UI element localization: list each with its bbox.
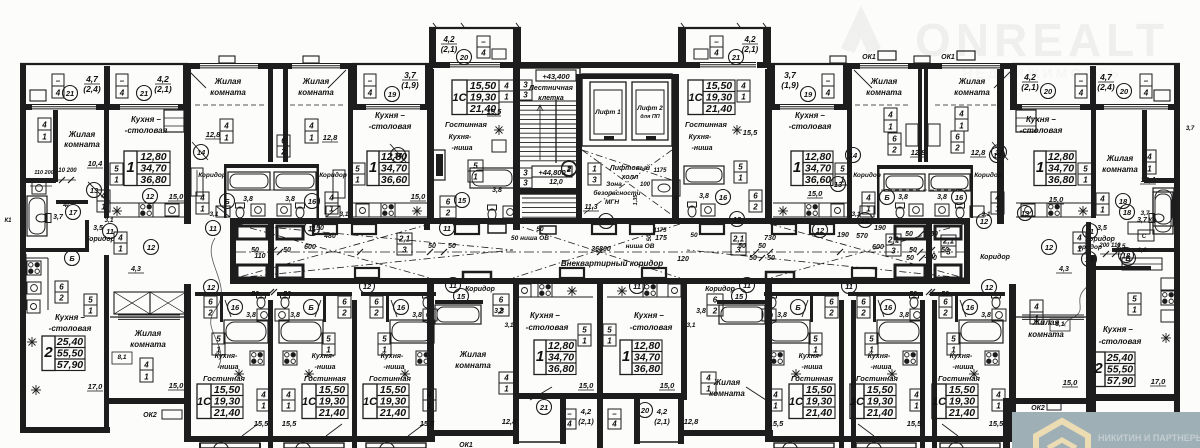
svg-text:3: 3 [736, 246, 741, 255]
svg-text:комната: комната [210, 88, 246, 97]
svg-text:1: 1 [101, 203, 106, 212]
svg-text:1: 1 [741, 93, 746, 102]
svg-text:Кухня-: Кухня- [950, 353, 973, 360]
svg-text:3,8: 3,8 [777, 312, 787, 319]
svg-text:3,7: 3,7 [404, 70, 417, 80]
svg-text:комната: комната [954, 88, 990, 97]
svg-text:Гостинная: Гостинная [304, 374, 346, 383]
svg-text:1: 1 [536, 348, 544, 365]
svg-text:50: 50 [767, 255, 775, 262]
svg-text:4,2: 4,2 [442, 35, 455, 44]
svg-text:16: 16 [719, 193, 728, 202]
svg-text:(2,1): (2,1) [742, 45, 759, 54]
svg-text:4: 4 [41, 121, 47, 130]
svg-text:570: 570 [856, 233, 868, 240]
svg-text:14: 14 [849, 151, 858, 160]
svg-text:3,7: 3,7 [784, 70, 797, 80]
svg-text:комната: комната [130, 340, 166, 349]
svg-text:1: 1 [706, 385, 711, 394]
svg-text:3,7: 3,7 [1186, 126, 1195, 132]
svg-text:-столовая: -столовая [1020, 126, 1063, 135]
svg-text:1: 1 [369, 159, 377, 176]
svg-text:15,5: 15,5 [907, 419, 922, 428]
svg-text:Кухня-: Кухня- [868, 353, 891, 360]
svg-text:Кухня –: Кухня – [1026, 115, 1057, 124]
svg-text:ОК1: ОК1 [459, 442, 473, 448]
svg-text:–: – [1144, 77, 1149, 86]
svg-text:1: 1 [473, 173, 478, 182]
svg-text:2: 2 [58, 294, 64, 303]
svg-text:55,50: 55,50 [1107, 364, 1133, 376]
svg-text:1: 1 [793, 159, 801, 176]
svg-text:4,7: 4,7 [1099, 72, 1113, 82]
svg-text:16: 16 [397, 303, 406, 312]
svg-text:50: 50 [690, 232, 698, 239]
svg-text:50: 50 [251, 291, 259, 298]
svg-text:2: 2 [828, 309, 834, 318]
svg-text:Б: Б [224, 197, 230, 206]
svg-text:Гостинная: Гостинная [445, 120, 487, 129]
svg-text:3,8: 3,8 [290, 312, 300, 319]
svg-text:4: 4 [143, 361, 149, 370]
svg-text:-ниша: -ниша [315, 364, 336, 371]
svg-text:4: 4 [887, 111, 893, 120]
svg-text:Кухня-: Кухня- [312, 353, 335, 360]
svg-text:15,50: 15,50 [214, 384, 240, 396]
svg-text:5: 5 [88, 296, 93, 305]
svg-text:4: 4 [1078, 89, 1084, 98]
svg-text:50: 50 [909, 247, 917, 254]
svg-text:1: 1 [582, 337, 587, 346]
svg-text:1: 1 [114, 176, 119, 185]
svg-text:4: 4 [1143, 89, 1149, 98]
svg-text:1: 1 [144, 373, 149, 382]
svg-text:Жилая: Жилая [1106, 154, 1134, 163]
svg-text:14: 14 [995, 148, 1004, 157]
svg-text:110 200: 110 200 [55, 168, 77, 174]
svg-text:1: 1 [88, 307, 93, 316]
svg-text:2: 2 [445, 209, 451, 218]
svg-text:4: 4 [673, 196, 678, 202]
svg-text:4: 4 [611, 420, 617, 429]
svg-text:1С: 1С [197, 396, 212, 408]
svg-text:15: 15 [458, 196, 467, 205]
svg-text:-ниша: -ниша [802, 364, 823, 371]
svg-text:15,5: 15,5 [254, 419, 269, 428]
svg-text:(2,4): (2,4) [1097, 82, 1115, 92]
svg-text:4: 4 [1099, 195, 1105, 204]
svg-text:36,80: 36,80 [1048, 174, 1074, 186]
svg-text:1: 1 [773, 402, 778, 411]
svg-text:21: 21 [65, 89, 74, 98]
svg-text:4: 4 [913, 391, 919, 400]
svg-text:19: 19 [388, 90, 397, 99]
svg-text:21,40: 21,40 [866, 407, 893, 419]
svg-text:15,0: 15,0 [660, 381, 675, 390]
svg-text:50: 50 [749, 255, 757, 262]
svg-text:-столовая: -столовая [369, 122, 412, 131]
svg-text:Жилая: Жилая [214, 77, 242, 86]
svg-text:5: 5 [114, 165, 119, 174]
svg-text:2: 2 [942, 309, 948, 318]
svg-text:4,2: 4,2 [743, 35, 756, 44]
svg-text:ОК2: ОК2 [143, 412, 157, 419]
svg-text:6: 6 [342, 298, 347, 307]
svg-text:Коридор: Коридор [85, 235, 115, 243]
svg-text:5: 5 [473, 162, 478, 171]
svg-text:4: 4 [995, 391, 1001, 400]
svg-text:6: 6 [281, 137, 286, 146]
svg-text:36,60: 36,60 [381, 174, 407, 186]
svg-text:1: 1 [607, 337, 612, 346]
svg-text:для ПП: для ПП [640, 114, 661, 120]
svg-text:3,7: 3,7 [1137, 217, 1148, 224]
svg-text:4,2: 4,2 [156, 74, 169, 84]
svg-text:Кухня-: Кухня- [689, 134, 712, 141]
svg-text:5: 5 [1132, 295, 1137, 304]
svg-text:16: 16 [308, 197, 317, 206]
svg-text:(2,4): (2,4) [83, 84, 101, 94]
svg-text:Кухня-: Кухня- [449, 134, 472, 141]
svg-text:4: 4 [713, 49, 719, 58]
svg-text:ОК1: ОК1 [941, 54, 955, 61]
svg-text:–: – [368, 77, 373, 86]
svg-text:50: 50 [428, 243, 436, 250]
svg-text:Жилая: Жилая [870, 77, 898, 86]
svg-text:-ниша: -ниша [452, 145, 473, 152]
svg-text:5: 5 [326, 335, 331, 344]
svg-text:19,30: 19,30 [319, 396, 345, 408]
svg-text:12,80: 12,80 [140, 151, 166, 163]
svg-text:Гостинная: Гостинная [203, 374, 245, 383]
svg-text:(2,1): (2,1) [441, 45, 458, 54]
svg-text:6: 6 [59, 283, 64, 292]
svg-text:1175: 1175 [654, 168, 668, 174]
svg-text:120: 120 [677, 256, 689, 263]
svg-text:комната: комната [298, 88, 334, 97]
svg-text:36,80: 36,80 [634, 363, 660, 375]
svg-text:1: 1 [200, 205, 205, 214]
svg-text:(2,1): (2,1) [1021, 82, 1039, 92]
svg-text:21,40: 21,40 [805, 407, 832, 419]
svg-text:4: 4 [825, 89, 831, 98]
svg-text:Жилая: Жилая [68, 130, 96, 139]
svg-text:15,0: 15,0 [808, 189, 823, 198]
svg-text:1С: 1С [850, 396, 865, 408]
svg-text:1С: 1С [688, 92, 703, 104]
svg-text:12,8: 12,8 [206, 130, 221, 139]
svg-text:комната: комната [1102, 165, 1138, 174]
svg-text:4,2: 4,2 [1023, 72, 1036, 82]
svg-text:–: – [612, 410, 617, 419]
svg-text:1: 1 [504, 385, 509, 394]
svg-text:600: 600 [304, 244, 316, 251]
svg-text:15,50: 15,50 [949, 384, 975, 396]
svg-text:НИКИТИН И ПАРТНЕРЫ: НИКИТИН И ПАРТНЕРЫ [1098, 433, 1200, 443]
svg-text:1,6: 1,6 [1137, 247, 1146, 254]
svg-text:50: 50 [906, 255, 914, 262]
svg-text:21,40: 21,40 [948, 407, 975, 419]
svg-text:+43,400: +43,400 [542, 72, 570, 81]
svg-text:20: 20 [459, 53, 469, 62]
svg-text:5: 5 [1083, 165, 1088, 174]
svg-text:6: 6 [753, 192, 758, 201]
svg-text:5: 5 [813, 335, 818, 344]
svg-text:-столовая: -столовая [526, 323, 569, 332]
svg-text:1: 1 [1083, 176, 1088, 185]
svg-text:190: 190 [837, 232, 849, 239]
svg-text:110: 110 [254, 253, 265, 260]
svg-text:4: 4 [740, 82, 746, 91]
svg-text:4,3: 4,3 [130, 266, 141, 273]
svg-text:50: 50 [758, 243, 766, 250]
svg-text:1: 1 [126, 159, 134, 176]
svg-text:-столовая: -столовая [1099, 337, 1142, 346]
svg-text:190: 190 [874, 225, 886, 232]
svg-text:4: 4 [503, 82, 509, 91]
svg-text:50: 50 [448, 243, 456, 250]
svg-text:3,7: 3,7 [53, 214, 64, 221]
svg-text:50: 50 [251, 247, 259, 254]
svg-text:11: 11 [845, 282, 853, 291]
svg-text:3,8: 3,8 [981, 312, 991, 319]
svg-text:3,8: 3,8 [699, 193, 709, 200]
svg-text:12: 12 [980, 217, 989, 226]
svg-text:57,90: 57,90 [57, 359, 83, 371]
svg-text:6: 6 [892, 135, 897, 144]
svg-text:4,7: 4,7 [85, 74, 99, 84]
svg-text:2: 2 [891, 146, 897, 155]
svg-text:4: 4 [994, 194, 1000, 203]
svg-text:5: 5 [951, 335, 956, 344]
svg-text:4: 4 [566, 420, 572, 429]
svg-text:2: 2 [752, 203, 758, 212]
svg-text:Гостинная: Гостинная [938, 374, 980, 383]
svg-text:3,7: 3,7 [1140, 210, 1149, 217]
svg-text:4: 4 [1076, 234, 1082, 243]
svg-text:15,0: 15,0 [169, 381, 184, 390]
svg-text:Б: Б [795, 303, 801, 312]
svg-text:6: 6 [499, 296, 504, 305]
svg-text:12: 12 [985, 283, 994, 292]
svg-text:Кухня-: Кухня- [799, 353, 822, 360]
svg-text:11: 11 [633, 282, 641, 291]
svg-text:6: 6 [208, 298, 213, 307]
svg-text:17,0: 17,0 [1151, 377, 1166, 386]
svg-text:13: 13 [834, 180, 843, 189]
svg-text:175: 175 [655, 235, 667, 242]
svg-text:17: 17 [69, 208, 78, 217]
svg-text:Коридор: Коридор [980, 253, 1010, 261]
svg-text:15,5: 15,5 [769, 419, 784, 428]
svg-text:Коридор: Коридор [853, 171, 881, 179]
svg-text:8,1: 8,1 [1055, 321, 1064, 328]
svg-text:Жилая: Жилая [459, 350, 487, 359]
svg-text:34,70: 34,70 [805, 163, 831, 175]
svg-text:13: 13 [1021, 209, 1030, 218]
svg-text:12,80: 12,80 [805, 151, 831, 163]
svg-text:комната: комната [866, 88, 902, 97]
svg-text:4: 4 [1146, 153, 1152, 162]
svg-text:6: 6 [955, 133, 960, 142]
svg-text:34,70: 34,70 [634, 352, 660, 364]
svg-text:–: – [826, 77, 831, 86]
svg-text:15,50: 15,50 [706, 80, 732, 92]
svg-text:Гостинная: Гостинная [685, 120, 727, 129]
svg-text:15,50: 15,50 [806, 384, 832, 396]
svg-text:Лестничная: Лестничная [528, 85, 573, 92]
svg-text:25,40: 25,40 [56, 336, 83, 348]
svg-text:50: 50 [647, 234, 653, 241]
svg-text:3,1: 3,1 [686, 322, 695, 329]
svg-text:2: 2 [373, 309, 379, 318]
svg-text:1С: 1С [789, 396, 804, 408]
svg-text:3,1: 3,1 [339, 211, 348, 218]
svg-text:15,0: 15,0 [411, 192, 426, 201]
svg-text:(2,1): (2,1) [578, 417, 594, 426]
svg-text:18: 18 [1119, 197, 1128, 206]
svg-text:21,40: 21,40 [705, 103, 732, 115]
svg-text:4,3: 4,3 [1058, 266, 1069, 273]
svg-text:50: 50 [909, 291, 917, 298]
svg-text:3: 3 [523, 81, 528, 90]
svg-text:50: 50 [905, 231, 913, 238]
svg-text:3,8: 3,8 [899, 312, 909, 319]
svg-text:15,50: 15,50 [380, 384, 406, 396]
svg-text:3,8: 3,8 [246, 312, 256, 319]
svg-text:1: 1 [738, 174, 743, 183]
svg-text:4: 4 [308, 122, 314, 131]
svg-text:–: – [567, 410, 572, 419]
svg-text:Кухня-: Кухня- [381, 353, 404, 360]
svg-text:2: 2 [280, 148, 286, 157]
svg-text:19,30: 19,30 [706, 92, 732, 104]
svg-text:12: 12 [733, 215, 742, 224]
svg-text:4: 4 [958, 110, 964, 119]
svg-text:6: 6 [374, 298, 379, 307]
svg-text:15,0: 15,0 [1063, 378, 1078, 387]
svg-text:18: 18 [1122, 251, 1131, 260]
svg-text:3,8: 3,8 [243, 196, 253, 203]
svg-text:1С: 1С [302, 396, 317, 408]
svg-text:12,8: 12,8 [502, 417, 517, 426]
svg-text:-ниша: -ниша [871, 364, 892, 371]
svg-text:4: 4 [328, 194, 334, 203]
svg-text:4: 4 [865, 194, 871, 203]
svg-text:11: 11 [308, 224, 316, 233]
svg-text:Коридор: Коридор [705, 285, 735, 293]
svg-text:-столовая: -столовая [49, 324, 92, 333]
svg-text:(2,1): (2,1) [654, 417, 670, 426]
svg-text:Б: Б [884, 193, 890, 202]
svg-text:12: 12 [147, 243, 156, 252]
svg-text:11: 11 [743, 281, 751, 290]
svg-text:12: 12 [207, 283, 216, 292]
svg-text:(1,9): (1,9) [401, 80, 419, 90]
svg-text:4,2: 4,2 [580, 407, 592, 416]
svg-text:-ниша: -ниша [953, 364, 974, 371]
svg-text:Гостинная: Гостинная [791, 374, 833, 383]
svg-text:4: 4 [503, 374, 509, 383]
svg-text:Кухня –: Кухня – [131, 115, 162, 124]
svg-text:19,30: 19,30 [806, 396, 832, 408]
svg-text:3,8: 3,8 [898, 194, 908, 201]
svg-text:15,5: 15,5 [487, 107, 502, 116]
svg-text:12,80: 12,80 [548, 340, 574, 352]
svg-text:Коридор: Коридор [465, 285, 495, 293]
svg-text:11: 11 [209, 224, 217, 233]
svg-text:1С: 1С [452, 92, 467, 104]
svg-text:600: 600 [872, 244, 884, 251]
svg-text:5: 5 [738, 163, 743, 172]
svg-text:17,0: 17,0 [88, 382, 103, 391]
svg-text:ОК1: ОК1 [862, 54, 876, 61]
svg-text:1,35: 1,35 [633, 194, 639, 206]
svg-text:1: 1 [118, 245, 123, 254]
svg-text:16: 16 [966, 303, 975, 312]
svg-text:Кухня –: Кухня – [530, 311, 561, 320]
svg-text:1С: 1С [363, 396, 378, 408]
svg-text:12: 12 [146, 192, 155, 201]
svg-text:Зона: Зона [606, 181, 622, 188]
svg-text:(1,9): (1,9) [781, 80, 799, 90]
svg-text:4: 4 [223, 122, 229, 131]
svg-text:Кухня –: Кухня – [795, 111, 826, 120]
svg-text:1: 1 [622, 348, 630, 365]
svg-text:4: 4 [100, 192, 106, 201]
svg-text:Кухня –: Кухня – [375, 111, 406, 120]
svg-text:8,1: 8,1 [117, 354, 126, 361]
svg-text:3: 3 [402, 246, 407, 255]
svg-text:4,2: 4,2 [656, 407, 668, 416]
svg-text:3: 3 [592, 176, 597, 185]
svg-text:1: 1 [1132, 306, 1137, 315]
svg-text:4: 4 [480, 49, 486, 58]
svg-text:15,5: 15,5 [282, 419, 297, 428]
svg-text:11: 11 [106, 227, 114, 236]
svg-text:34,70: 34,70 [548, 352, 574, 364]
svg-text:34,70: 34,70 [381, 163, 407, 175]
svg-text:3: 3 [523, 169, 528, 178]
svg-text:Лифт 1: Лифт 1 [594, 109, 621, 116]
svg-text:10,4: 10,4 [88, 159, 103, 168]
svg-text:2,1: 2,1 [398, 235, 411, 244]
svg-text:5: 5 [607, 326, 612, 335]
svg-text:(2,1): (2,1) [154, 84, 172, 94]
svg-text:15,50: 15,50 [319, 384, 345, 396]
svg-text:3,5: 3,5 [93, 225, 103, 232]
svg-text:4: 4 [772, 391, 778, 400]
svg-text:12,0: 12,0 [549, 179, 563, 186]
svg-text:3,8: 3,8 [937, 194, 947, 201]
svg-text:-столовая: -столовая [630, 323, 673, 332]
svg-text:3,8: 3,8 [412, 312, 422, 319]
svg-text:ОК2: ОК2 [1031, 405, 1045, 412]
svg-text:3,8: 3,8 [696, 308, 706, 315]
svg-text:4: 4 [260, 391, 266, 400]
svg-text:1: 1 [995, 205, 1000, 214]
svg-text:19,30: 19,30 [380, 396, 406, 408]
svg-text:1: 1 [1100, 206, 1105, 215]
svg-text:21: 21 [139, 89, 148, 98]
svg-text:1: 1 [1147, 165, 1152, 174]
svg-text:5: 5 [355, 165, 360, 174]
svg-text:21,40: 21,40 [213, 407, 240, 419]
svg-text:2: 2 [566, 164, 572, 173]
svg-text:3: 3 [891, 247, 896, 256]
svg-text:50: 50 [283, 247, 291, 254]
svg-text:Жилая: Жилая [958, 77, 986, 86]
